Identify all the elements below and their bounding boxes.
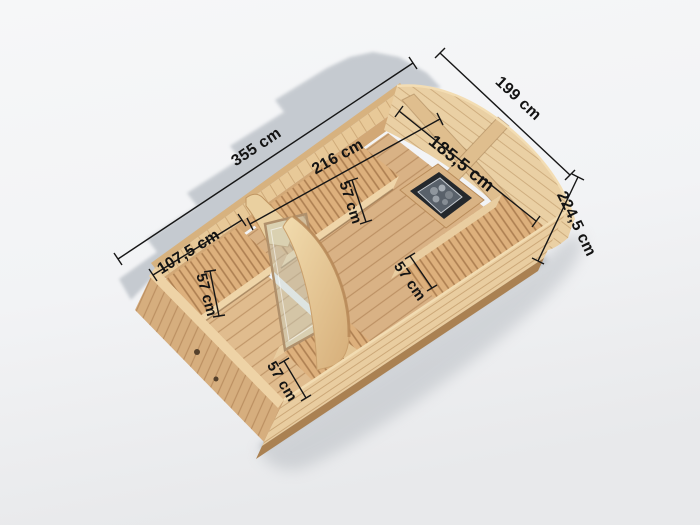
heater-stone bbox=[430, 187, 438, 195]
left-wall-fitting bbox=[214, 377, 219, 382]
left-wall-fitting bbox=[194, 349, 200, 355]
heater-stone bbox=[439, 185, 446, 192]
heater-stone bbox=[442, 199, 448, 205]
sauna-dimension-render: 355 cm 199 cm 224,5 cm 185,5 cm 216 cm 5… bbox=[0, 0, 700, 525]
heater-stone bbox=[433, 196, 440, 203]
product-render-stage: 355 cm 199 cm 224,5 cm 185,5 cm 216 cm 5… bbox=[0, 0, 700, 525]
heater-stone bbox=[445, 191, 453, 199]
